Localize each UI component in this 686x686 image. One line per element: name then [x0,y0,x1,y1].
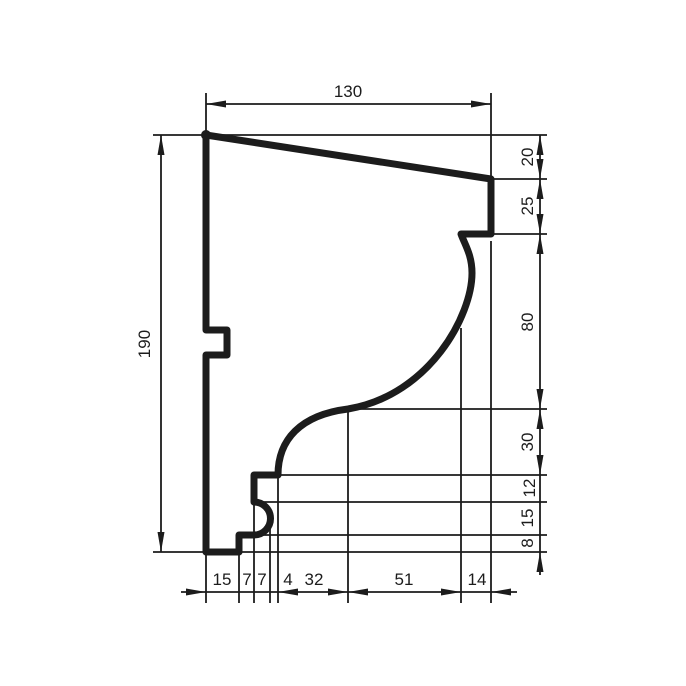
arrow-51-left [348,589,368,596]
dim-label-7a: 7 [242,570,251,589]
dim-label-51: 51 [395,570,414,589]
arrow-80-bottom [537,389,544,409]
dim-label-190: 190 [135,330,154,358]
dim-label-8: 8 [518,538,537,547]
arrow-8-bottom-outside [537,552,544,572]
arrow-130-left [206,101,226,108]
dim-label-32: 32 [305,570,324,589]
molding-profile-drawing: 130 190 20 25 80 30 12 15 8 15 7 7 4 32 … [0,0,686,686]
technical-drawing-page: 130 190 20 25 80 30 12 15 8 15 7 7 4 32 … [0,0,686,686]
arrow-bottom-left-outside [186,589,206,596]
arrow-51-right [441,589,461,596]
arrow-30-top [537,409,544,429]
arrow-32-left [278,589,298,596]
arrow-80-top [537,234,544,254]
arrow-32-right [328,589,348,596]
arrow-bottom-right-outside [491,589,511,596]
dim-label-7b: 7 [257,570,266,589]
dim-label-25: 25 [518,197,537,216]
arrow-190-bottom [158,532,165,552]
vertex-dot [201,130,211,140]
arrow-20-bottom [537,159,544,179]
dim-label-12: 12 [520,479,539,498]
dim-label-80: 80 [518,313,537,332]
dim-label-130: 130 [334,82,362,101]
arrow-20-top [537,135,544,155]
dim-label-4: 4 [283,570,292,589]
dim-label-15-bottom: 15 [213,570,232,589]
extension-lines [153,93,547,603]
dim-label-14: 14 [468,570,487,589]
dim-label-20: 20 [518,148,537,167]
arrow-25-top [537,179,544,199]
arrow-190-top [158,135,165,155]
dim-label-30: 30 [518,433,537,452]
arrow-30-bottom [537,455,544,475]
arrow-130-right [471,101,491,108]
dim-label-15-right: 15 [518,509,537,528]
arrow-25-bottom [537,214,544,234]
